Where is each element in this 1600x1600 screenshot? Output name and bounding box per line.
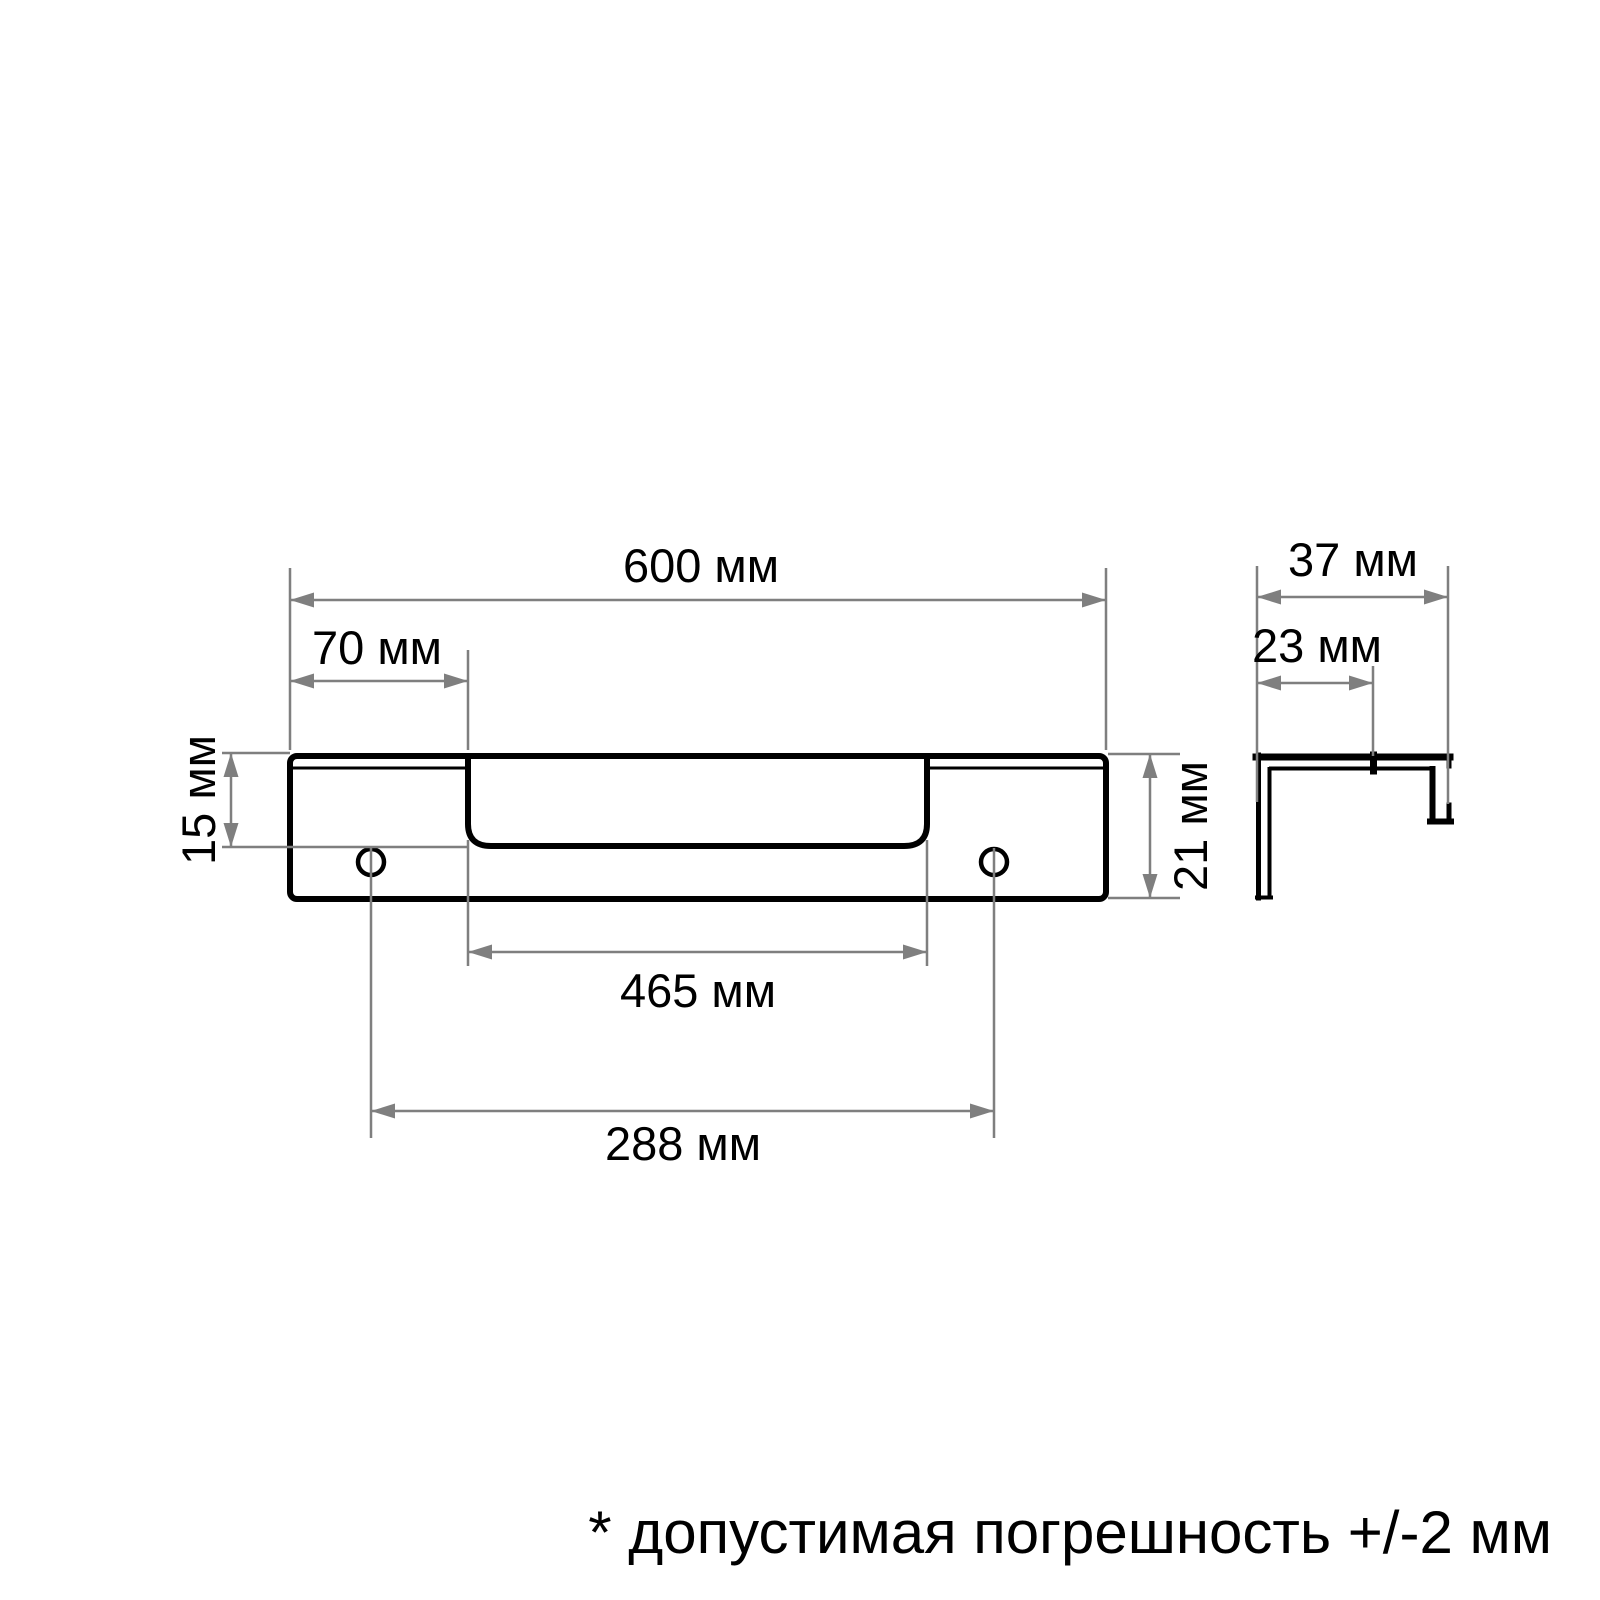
handle-outline [290,756,1106,899]
arrowhead-down [224,823,239,847]
technical-drawing: 600 мм 70 мм 15 мм 21 мм [0,0,1600,1600]
dimension-side-inner-depth: 23 мм [1252,619,1382,756]
side-view [1256,755,1451,898]
dimension-recess-length: 465 мм [468,840,927,1017]
arrowhead-right [1424,590,1448,605]
arrowhead-up [224,753,239,777]
arrowhead-left [1257,590,1281,605]
dim-label-total-length: 600 мм [623,539,779,592]
arrowhead-right [444,674,468,689]
dim-label-recess-length: 465 мм [620,964,776,1017]
dim-label-side-inner-depth: 23 мм [1252,619,1382,672]
dim-label-left-offset: 70 мм [312,621,442,674]
dimension-profile-height: 21 мм [1108,754,1217,898]
arrowhead-left [371,1104,395,1119]
arrowhead-down [1143,874,1158,898]
dim-label-groove-depth: 15 мм [172,735,225,865]
arrowhead-right [1349,676,1373,691]
dim-label-profile-height: 21 мм [1164,761,1217,891]
dimension-left-offset: 70 мм [290,621,468,750]
arrowhead-left [1257,676,1281,691]
arrowhead-left [290,674,314,689]
arrowhead-right [903,945,927,960]
arrowhead-left [468,945,492,960]
arrowhead-left [290,593,314,608]
tolerance-note: * допустимая погрешность +/-2 мм [588,1499,1552,1566]
arrowhead-up [1143,754,1158,778]
front-view [290,756,1106,899]
grip-recess [468,756,927,846]
dim-label-side-depth: 37 мм [1288,533,1418,586]
dim-label-hole-spacing: 288 мм [605,1117,761,1170]
arrowhead-right [970,1104,994,1119]
arrowhead-right [1082,593,1106,608]
